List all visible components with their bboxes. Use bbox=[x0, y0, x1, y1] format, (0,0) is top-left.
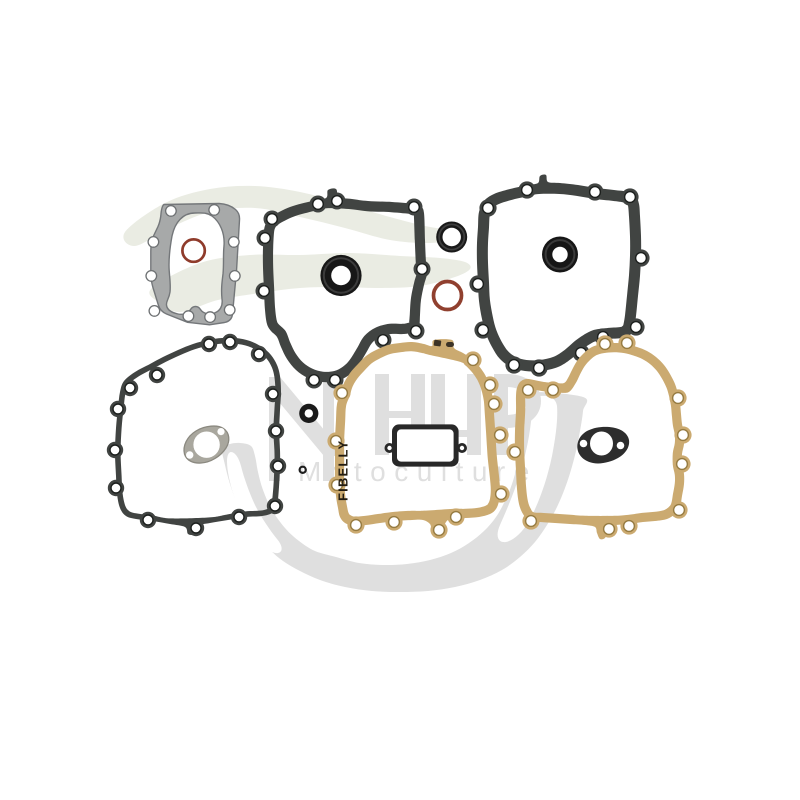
svg-text:FIBELLY: FIBELLY bbox=[336, 440, 351, 501]
